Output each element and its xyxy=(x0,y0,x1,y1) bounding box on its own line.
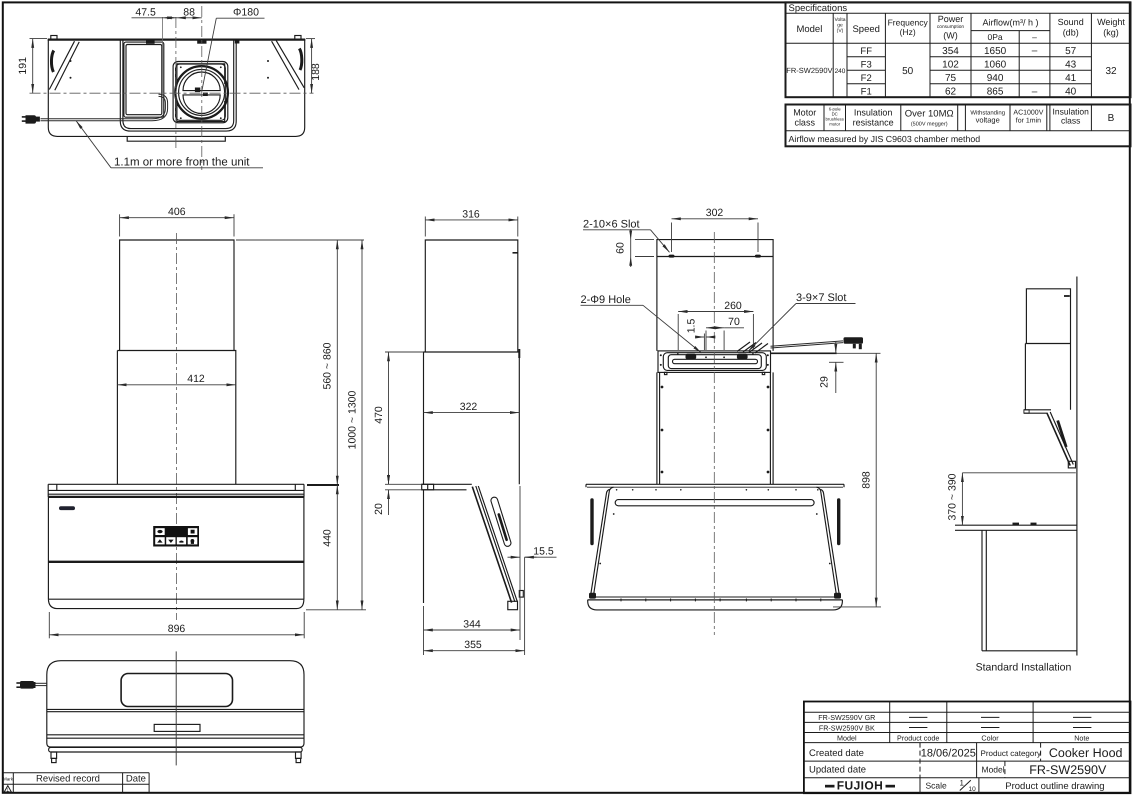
svg-text:Standard Installation: Standard Installation xyxy=(976,662,1072,674)
svg-text:344: 344 xyxy=(463,618,481,630)
svg-text:Specifications: Specifications xyxy=(789,3,848,14)
svg-text:Revised record: Revised record xyxy=(36,774,100,785)
svg-text:0Pa: 0Pa xyxy=(988,32,1003,42)
svg-text:–: – xyxy=(1032,86,1038,97)
svg-text:F3: F3 xyxy=(861,59,872,70)
svg-text:2-10×6 Slot: 2-10×6 Slot xyxy=(583,218,640,230)
svg-text:AC1000V: AC1000V xyxy=(1013,110,1043,117)
svg-text:consumption: consumption xyxy=(937,24,965,30)
svg-text:Product code: Product code xyxy=(897,733,939,742)
svg-text:(Hz): (Hz) xyxy=(900,27,916,37)
svg-text:Model: Model xyxy=(796,24,822,35)
svg-text:(db): (db) xyxy=(1063,28,1079,38)
svg-text:2-Φ9 Hole: 2-Φ9 Hole xyxy=(581,294,631,306)
svg-text:Mark: Mark xyxy=(3,777,14,782)
svg-text:Sound: Sound xyxy=(1058,17,1084,27)
svg-text:29: 29 xyxy=(818,376,830,388)
svg-text:88: 88 xyxy=(183,7,195,19)
svg-text:Model: Model xyxy=(982,765,1005,775)
svg-text:47.5: 47.5 xyxy=(135,7,156,19)
svg-text:(V): (V) xyxy=(837,28,844,34)
svg-text:70: 70 xyxy=(728,316,740,328)
svg-text:18/06/2025: 18/06/2025 xyxy=(921,748,976,760)
svg-text:470: 470 xyxy=(373,406,385,424)
svg-text:1.5: 1.5 xyxy=(686,319,698,334)
svg-text:1060: 1060 xyxy=(984,59,1007,70)
svg-text:62: 62 xyxy=(945,86,957,97)
svg-text:322: 322 xyxy=(460,401,478,413)
svg-text:Scale: Scale xyxy=(926,781,948,791)
svg-text:43: 43 xyxy=(1065,59,1077,70)
svg-text:302: 302 xyxy=(706,207,724,219)
svg-text:Color: Color xyxy=(981,733,999,742)
svg-text:Airflow measured by JIS C9603: Airflow measured by JIS C9603 chamber me… xyxy=(789,134,981,144)
svg-text:B: B xyxy=(1108,113,1115,124)
svg-text:for 1min: for 1min xyxy=(1016,117,1041,125)
svg-text:1650: 1650 xyxy=(984,46,1007,57)
svg-text:F1: F1 xyxy=(861,86,872,97)
svg-text:896: 896 xyxy=(168,623,186,635)
svg-text:Motor: Motor xyxy=(793,108,816,118)
svg-text:motor: motor xyxy=(829,122,841,127)
svg-text:370 ~ 390: 370 ~ 390 xyxy=(946,473,958,520)
svg-text:Date: Date xyxy=(126,774,146,785)
svg-text:50: 50 xyxy=(902,66,914,77)
svg-text:102: 102 xyxy=(942,59,959,70)
svg-text:Product outline drawing: Product outline drawing xyxy=(1005,781,1104,792)
svg-text:354: 354 xyxy=(942,46,959,57)
svg-text:Airflow(m³/ h ): Airflow(m³/ h ) xyxy=(983,18,1039,28)
svg-text:Speed: Speed xyxy=(852,24,879,35)
svg-text:Over 10MΩ: Over 10MΩ xyxy=(905,109,954,120)
svg-text:(W): (W) xyxy=(943,31,958,41)
svg-text:940: 940 xyxy=(987,73,1004,84)
svg-text:898: 898 xyxy=(861,471,873,489)
svg-text:440: 440 xyxy=(321,529,333,547)
svg-text:Frequency: Frequency xyxy=(888,18,929,28)
svg-text:15.5: 15.5 xyxy=(533,546,554,558)
svg-text:Note: Note xyxy=(1074,733,1089,742)
svg-text:865: 865 xyxy=(987,86,1004,97)
svg-text:Updated date: Updated date xyxy=(809,765,866,776)
svg-text:Created date: Created date xyxy=(809,748,864,759)
svg-text:class: class xyxy=(794,118,815,128)
svg-text:F2: F2 xyxy=(861,73,872,84)
svg-text:1.1m or more from the unit: 1.1m or more from the unit xyxy=(114,156,250,168)
svg-text:Cooker Hood: Cooker Hood xyxy=(1049,746,1123,760)
svg-text:Insulation: Insulation xyxy=(854,108,893,118)
svg-text:voltage: voltage xyxy=(976,116,1000,125)
svg-text:406: 406 xyxy=(168,206,186,218)
svg-text:Weight: Weight xyxy=(1097,17,1125,27)
svg-text:3-9×7 Slot: 3-9×7 Slot xyxy=(796,292,846,304)
svg-text:class: class xyxy=(1061,116,1080,126)
svg-text:412: 412 xyxy=(187,373,205,385)
svg-text:FUJIOH: FUJIOH xyxy=(837,779,883,793)
svg-text:(kg): (kg) xyxy=(1103,28,1119,38)
svg-text:355: 355 xyxy=(464,639,482,651)
svg-text:FR-SW2590V GR: FR-SW2590V GR xyxy=(818,713,875,722)
svg-text:Power: Power xyxy=(938,14,964,24)
svg-text:40: 40 xyxy=(1065,86,1077,97)
svg-text:–: – xyxy=(1032,32,1037,42)
svg-text:FF: FF xyxy=(860,46,872,57)
svg-text:(500V megger): (500V megger) xyxy=(911,122,948,128)
svg-text:20: 20 xyxy=(373,503,385,515)
svg-text:resistance: resistance xyxy=(853,118,894,128)
svg-text:32: 32 xyxy=(1105,66,1117,77)
svg-text:240: 240 xyxy=(835,68,846,75)
svg-text:Φ180: Φ180 xyxy=(233,6,259,18)
svg-text:1000 ~ 1300: 1000 ~ 1300 xyxy=(347,391,359,450)
svg-text:191: 191 xyxy=(17,57,29,75)
svg-text:57: 57 xyxy=(1065,46,1077,57)
svg-text:10: 10 xyxy=(969,786,977,793)
svg-text:260: 260 xyxy=(724,300,742,312)
svg-text:Model: Model xyxy=(837,733,857,742)
svg-text:–: – xyxy=(1032,45,1038,56)
svg-text:41: 41 xyxy=(1065,73,1077,84)
svg-text:FR-SW2590V: FR-SW2590V xyxy=(786,66,832,75)
svg-text:60: 60 xyxy=(615,242,627,254)
svg-text:75: 75 xyxy=(945,73,957,84)
svg-text:560 ~ 860: 560 ~ 860 xyxy=(321,342,333,389)
svg-text:316: 316 xyxy=(462,208,480,220)
svg-text:Product category: Product category xyxy=(981,749,1041,758)
svg-text:188: 188 xyxy=(310,63,322,81)
svg-text:FR-SW2590V: FR-SW2590V xyxy=(1029,763,1107,777)
svg-text:FR-SW2590V BK: FR-SW2590V BK xyxy=(819,723,875,732)
